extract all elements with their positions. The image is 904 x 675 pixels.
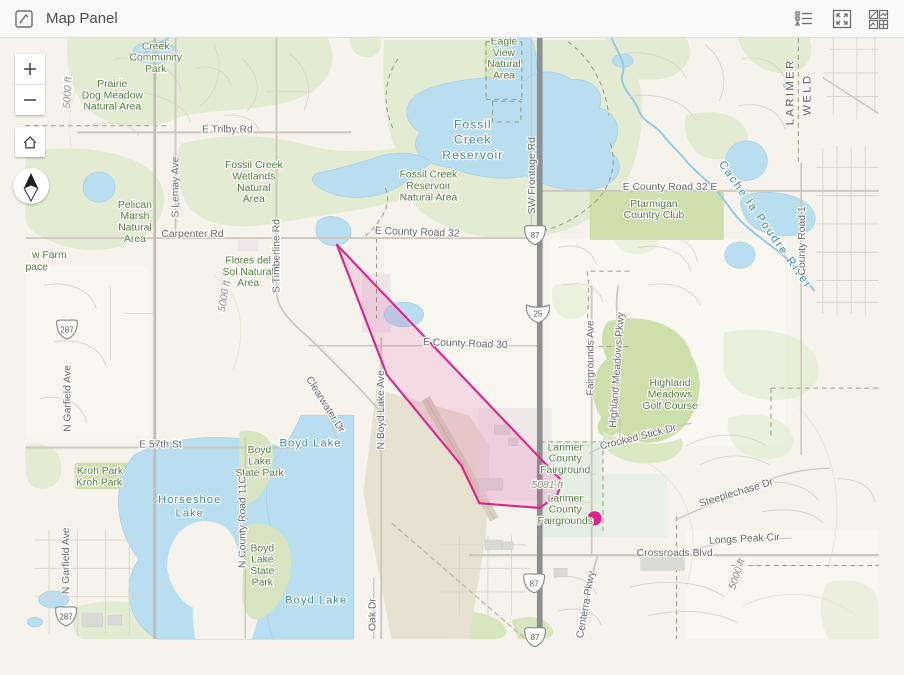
map-label: Boyd Lake xyxy=(285,594,347,606)
map-label: E County Road 32 E xyxy=(623,182,718,193)
map-label: S Lemay Ave xyxy=(170,156,181,217)
map-label: Kroh Park xyxy=(77,466,124,477)
map-label: Fairgrounds Ave xyxy=(586,320,597,396)
svg-text:87: 87 xyxy=(531,231,540,240)
map-label: E 57th St xyxy=(139,440,182,451)
north-arrow-icon xyxy=(13,168,49,204)
svg-text:87: 87 xyxy=(530,579,539,588)
map-label: SW Frontage Rd xyxy=(527,137,538,214)
map-label: Crossroads Blvd xyxy=(637,548,713,559)
map-label: Kroh Park xyxy=(76,477,123,488)
map-label: LARIMER xyxy=(785,58,797,125)
map-label: WELD xyxy=(802,74,814,116)
svg-text:87: 87 xyxy=(531,633,540,642)
map-panel-icon xyxy=(12,7,36,31)
panel-header: Map Panel xyxy=(0,0,904,38)
route-shield: 87 xyxy=(525,628,546,647)
map-panel-app: Map Panel xyxy=(0,0,904,675)
map-label: Carpenter Rd xyxy=(161,229,224,240)
basemap-gallery-icon[interactable] xyxy=(866,7,890,31)
svg-text:25: 25 xyxy=(533,309,542,318)
zoom-in-button[interactable] xyxy=(15,54,45,85)
map-label: N Boyd Lake Ave xyxy=(376,370,387,450)
zoom-controls xyxy=(15,54,45,115)
map-label: E Trilby Rd xyxy=(202,124,253,135)
map-label: w Farm xyxy=(31,250,67,261)
map-label: Oak Dr xyxy=(368,598,379,631)
map-label: N Garfield Ave xyxy=(63,365,74,432)
map-label: Fossil CreekReservoirNatural Area xyxy=(400,170,458,204)
home-icon xyxy=(20,132,40,152)
map-label: Boyd Lake xyxy=(279,438,341,450)
map-label: BoydLakeStatePark xyxy=(250,543,274,588)
map-label: PtarmiganCountry Club xyxy=(624,199,685,221)
legend-icon[interactable] xyxy=(792,7,816,31)
map-label: N County Road 11C xyxy=(237,476,248,569)
zoom-out-button[interactable] xyxy=(15,85,45,115)
map-label: S Timberline Rd xyxy=(271,219,282,293)
map-label: HighlandMeadowsGolf Course xyxy=(642,378,698,412)
map-label: 5000 ft xyxy=(62,75,75,108)
home-button[interactable] xyxy=(15,127,45,157)
compass-button[interactable] xyxy=(13,168,49,204)
panel-title: Map Panel xyxy=(46,10,118,27)
map-label: 5081 ft xyxy=(531,480,564,491)
map-label: pace xyxy=(25,262,48,273)
map-label: N Garfield Ave xyxy=(61,527,72,594)
map-canvas[interactable]: 87258787287287 CreekCommunityParkPrairie… xyxy=(0,38,904,675)
svg-text:287: 287 xyxy=(59,612,73,621)
map-label: County Road 1 xyxy=(797,206,808,275)
svg-text:287: 287 xyxy=(60,325,74,334)
expand-icon[interactable] xyxy=(830,7,854,31)
